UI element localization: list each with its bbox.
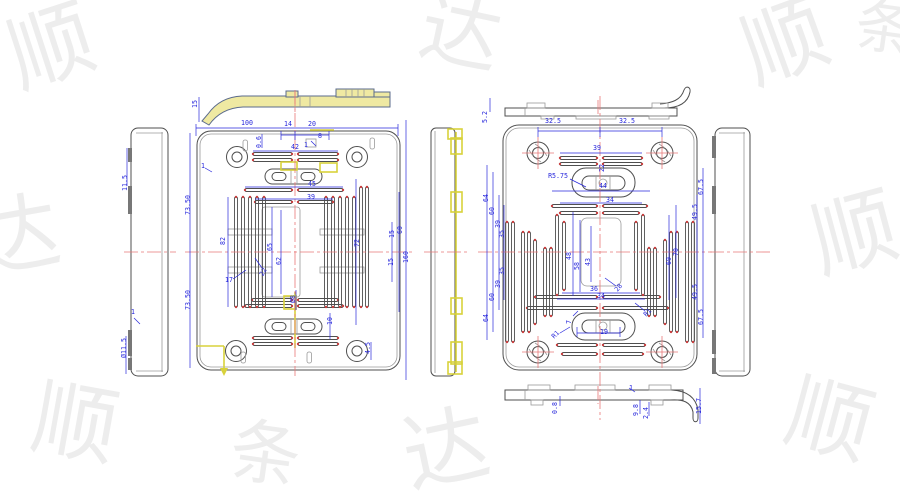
profile-hook-right [660, 87, 690, 108]
dim-label: 64 [482, 194, 490, 202]
cad-drawing: 顺达顺条达顺顺达顺条 [0, 0, 900, 500]
dim-label: 20 [308, 120, 316, 128]
dim-label: Ø11.5 [120, 338, 128, 358]
dim-label: 39 [494, 280, 502, 288]
dim-label: 34 [606, 196, 614, 204]
dim-label: 72 [353, 239, 361, 247]
dim-label: 62 [275, 257, 283, 265]
dim-label: 7 [565, 320, 573, 324]
side-left-tab [128, 330, 132, 356]
profile-hook-down [670, 390, 698, 422]
dim-label: 73.50 [184, 290, 192, 310]
profile-bar [505, 108, 677, 116]
dim-label: 60 [488, 207, 496, 215]
watermark-glyph: 顺 [801, 176, 900, 294]
view-plan-left [196, 130, 400, 376]
view-profile-top-left [202, 89, 390, 125]
side-left-tab [128, 148, 132, 162]
dim-label: 19 [600, 328, 608, 336]
watermark-glyph: 顺 [776, 362, 884, 480]
dim-label: 22 [258, 267, 269, 278]
dim-label: 4.5 [364, 342, 372, 354]
dim-label: 65 [266, 243, 274, 251]
watermark-glyph: 顺 [0, 0, 107, 108]
dim-label: 5.2 [481, 111, 489, 123]
dim-label: 28 [613, 282, 624, 293]
dim-label: 8 [318, 132, 322, 140]
dim-label: 14 [284, 120, 292, 128]
cad-viewport: 顺达顺条达顺顺达顺条 [0, 0, 900, 500]
dim-label: 58 [573, 262, 581, 270]
dim-label: R1 [642, 307, 653, 318]
watermark-glyph: 顺 [24, 368, 125, 480]
dim-label: 35 [498, 230, 506, 238]
dim-label: R1 [550, 329, 561, 340]
screw-hole [226, 147, 368, 362]
dim-label: 17 [225, 276, 233, 284]
view-profile-top-right [505, 87, 690, 119]
watermark-glyph: 条 [225, 409, 306, 500]
side-right-tab [712, 330, 716, 354]
side-left-tab [128, 358, 132, 370]
dim-label: 39 [593, 144, 601, 152]
profile-hook-left [202, 96, 390, 125]
dim-label: 10 [326, 317, 334, 325]
dim-label: 11.5 [121, 175, 129, 191]
dim-label: 70 [672, 248, 680, 256]
side-right-tab [712, 186, 716, 214]
dimension-lines [126, 97, 703, 424]
dim-label: 1 [629, 384, 633, 392]
side-right-tab [712, 358, 716, 374]
dim-label: 64 [482, 314, 490, 322]
watermark-glyph: 顺 [728, 0, 842, 104]
side-right-tab [712, 136, 716, 158]
dim-label: 60 [488, 293, 496, 301]
view-profile-bottom-right [505, 385, 698, 422]
dim-label: 0.6 [255, 136, 263, 148]
dim-label: 100 [241, 119, 253, 127]
watermark-glyph: 条 [851, 0, 900, 66]
dim-label: 34 [597, 292, 605, 300]
dim-label: 15 [388, 230, 396, 238]
dim-label: 48 [565, 252, 573, 260]
dim-label: 15.7 [695, 398, 703, 414]
dim-label: 1 [201, 162, 205, 170]
dim-label: 2.4 [642, 407, 650, 419]
highlight-arrow [220, 368, 228, 376]
dim-label: Ø8 [289, 295, 297, 303]
watermark-glyph: 达 [0, 181, 68, 293]
rib-pattern-left [235, 153, 369, 346]
dim-label: 1 [131, 308, 135, 316]
dim-label: 1 [304, 141, 308, 149]
dim-label: 32.5 [619, 117, 635, 125]
dim-label: 32.5 [545, 117, 561, 125]
dim-label: 9.8 [632, 404, 640, 416]
dim-label: 15 [191, 100, 199, 108]
watermark-layer: 顺达顺条达顺顺达顺条 [0, 0, 900, 500]
dim-label: 42 [291, 143, 299, 151]
dim-label: 60 [396, 226, 404, 234]
dim-label: 0.8 [551, 402, 559, 414]
dim-label: 67.5 [697, 179, 705, 195]
dim-label: 39 [494, 220, 502, 228]
dim-label: 15 [387, 258, 395, 266]
dimension-labels: 1510014200.681421453973.5073.50821765622… [120, 100, 705, 419]
dim-label: 45 [308, 180, 316, 188]
keyhole-slot-bottom [265, 319, 322, 334]
dim-label: 35 [498, 267, 506, 275]
dim-label: R5.75 [548, 172, 568, 180]
watermark-glyph: 达 [394, 393, 498, 500]
dim-label: 22 [598, 164, 606, 172]
dim-label: 39 [307, 193, 315, 201]
watermark-glyph: 达 [412, 0, 510, 87]
profile-bar [505, 390, 683, 400]
dim-label: 69 [665, 257, 673, 265]
dim-label: 43 [584, 258, 592, 266]
dim-label: 44 [599, 182, 607, 190]
dim-label: 160 [402, 251, 410, 263]
dim-label: 67.5 [697, 309, 705, 325]
dim-label: 82 [219, 237, 227, 245]
dim-label: 49.5 [691, 284, 699, 300]
dim-label: 73.50 [184, 195, 192, 215]
dim-label: 49.5 [691, 204, 699, 220]
